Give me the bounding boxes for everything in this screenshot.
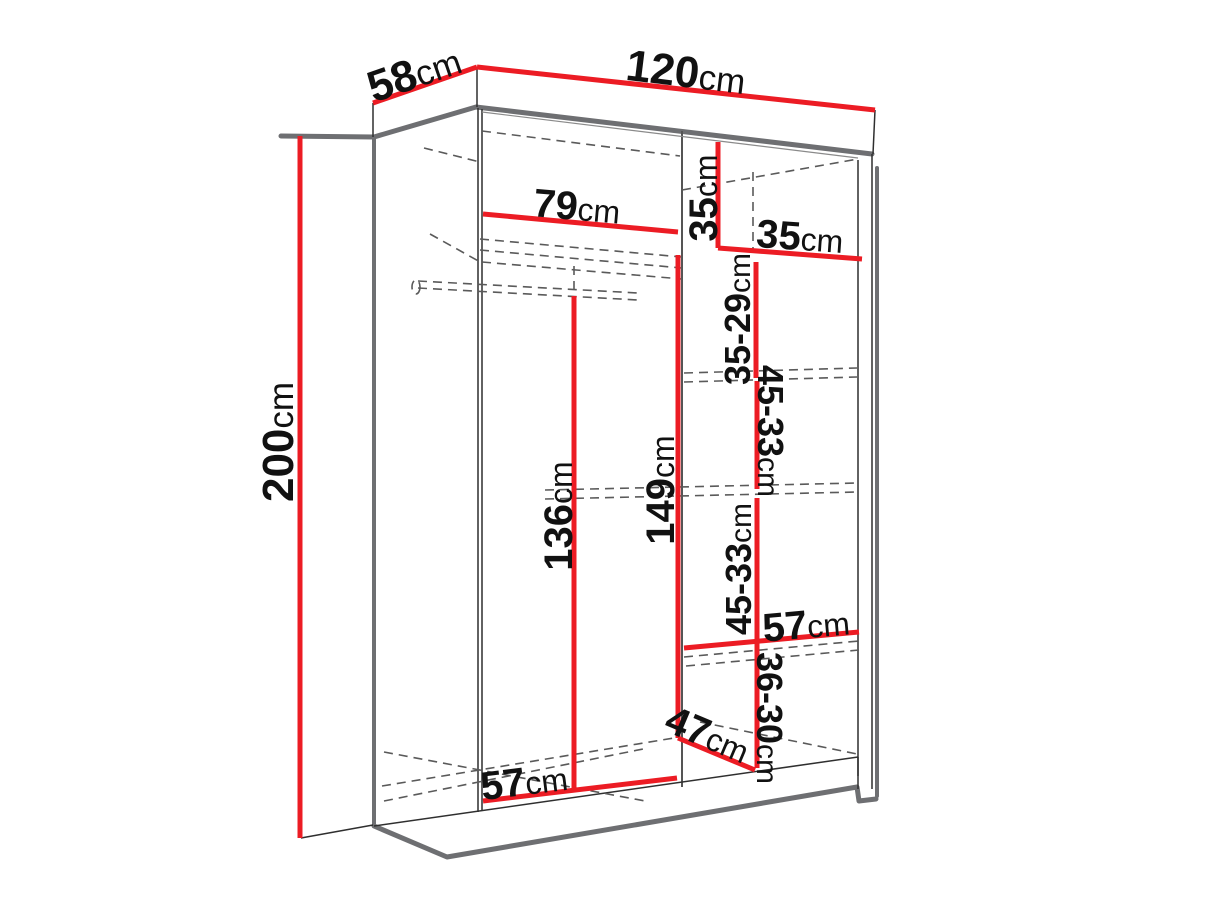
cabinet-top-edge bbox=[281, 107, 872, 154]
hanging-rail-top bbox=[418, 281, 638, 293]
height-label: 200cm bbox=[254, 382, 303, 502]
dimension-labels: 58cm 120cm 200cm 79cm 35cm 35cm 35-29cm … bbox=[254, 35, 851, 809]
right-section-4-label: 36-30cm bbox=[749, 652, 790, 784]
wardrobe-drawing: 58cm 120cm 200cm 79cm 35cm 35cm 35-29cm … bbox=[0, 0, 1214, 911]
right-section-3-label: 45-33cm bbox=[718, 503, 759, 635]
right-section-2-label: 45-33cm bbox=[750, 365, 791, 497]
ceiling-back-corner bbox=[424, 148, 480, 162]
top-cubby-height-label: 35cm bbox=[682, 154, 726, 241]
mid-shelf-front bbox=[545, 483, 857, 490]
top-shelf-front-edge bbox=[480, 250, 682, 268]
bottom-shelf-depth-label: 47cm bbox=[659, 698, 756, 773]
hanging-rail-end bbox=[412, 280, 420, 294]
opening-bottom-edge bbox=[374, 757, 858, 826]
left-panel-bottom-edge bbox=[301, 825, 373, 838]
left-shelf-width-label: 79cm bbox=[532, 181, 623, 232]
hanging-rail-bottom bbox=[418, 288, 638, 300]
mid-shelf-back bbox=[545, 492, 857, 499]
wardrobe-diagram: 58cm 120cm 200cm 79cm 35cm 35cm 35-29cm … bbox=[0, 0, 1214, 911]
width-label: 120cm bbox=[623, 41, 748, 104]
left-hanging-height-label: 136cm bbox=[537, 461, 581, 570]
top-slab-right-corner bbox=[873, 110, 875, 154]
ceiling-front-edge bbox=[482, 112, 858, 158]
top-shelf-back-edge bbox=[480, 239, 682, 257]
center-hanging-height-label: 149cm bbox=[639, 435, 683, 544]
top-shelf-side-edge bbox=[430, 234, 482, 263]
ceiling-back-edge-left bbox=[482, 131, 680, 156]
depth-label: 58cm bbox=[361, 35, 467, 112]
top-cubby-width-label: 35cm bbox=[755, 212, 845, 262]
